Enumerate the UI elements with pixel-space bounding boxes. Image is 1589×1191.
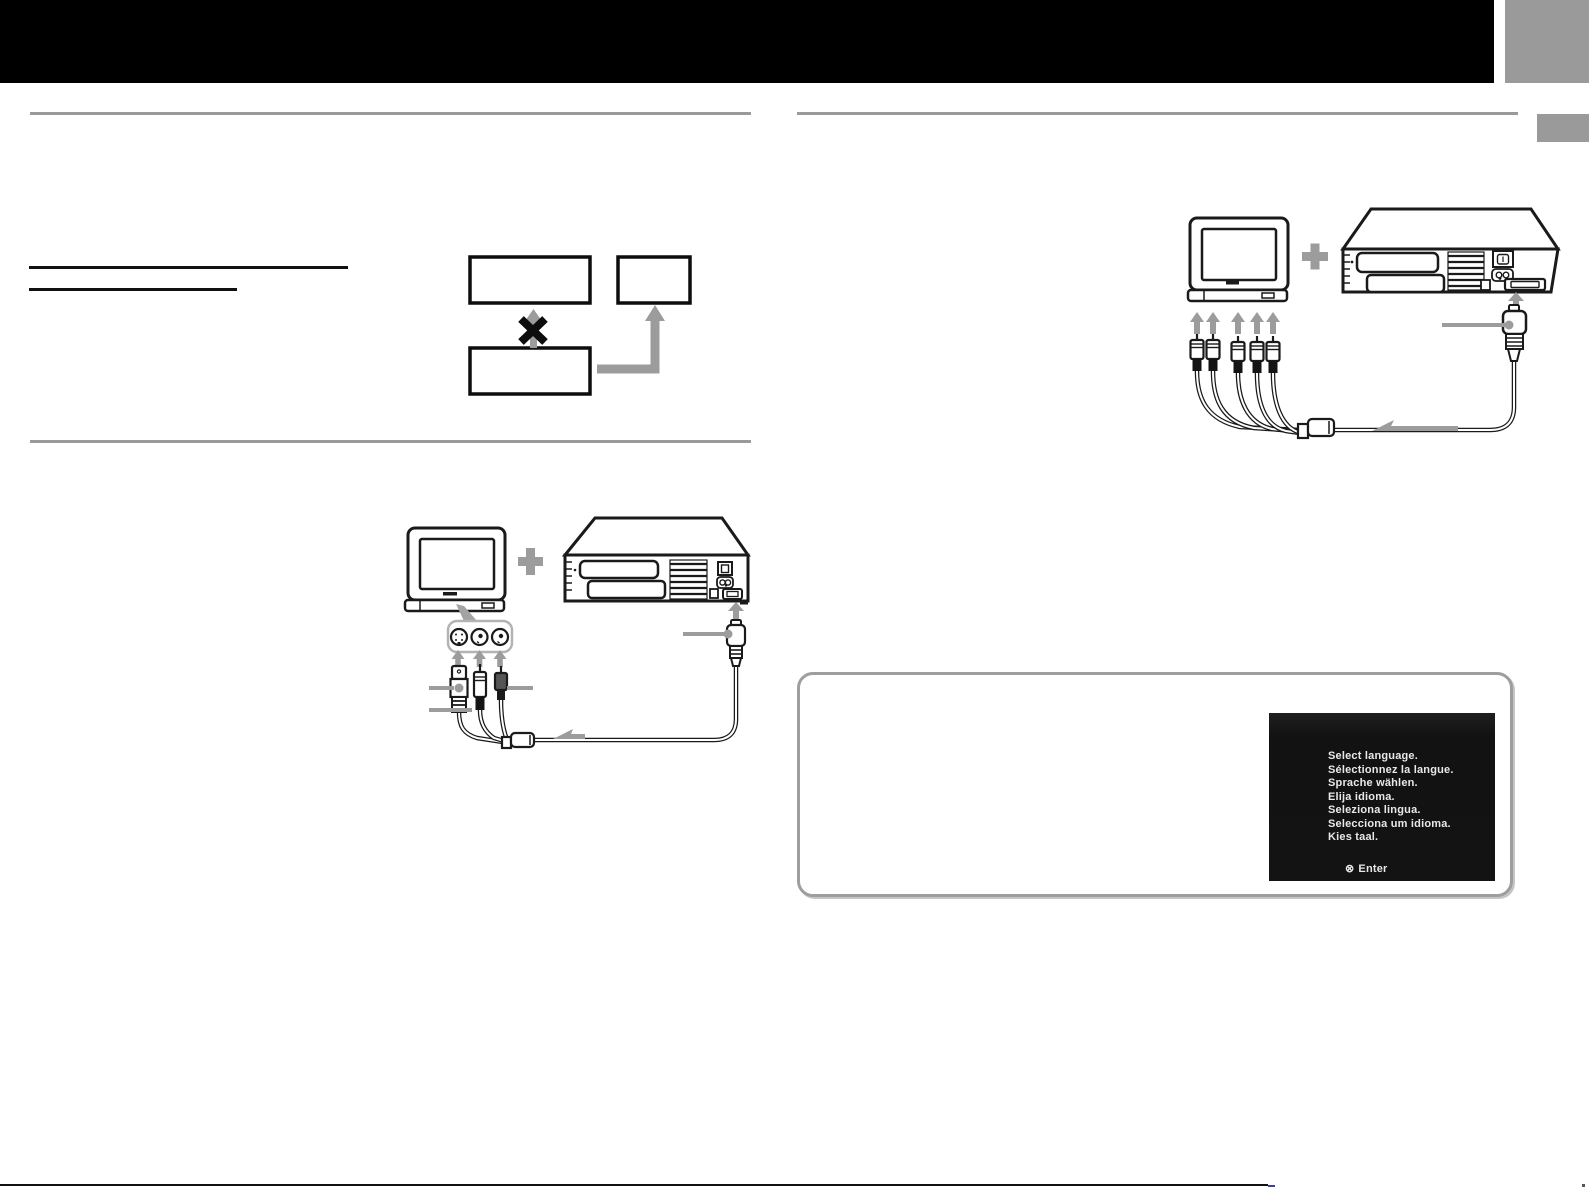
rca-plug: [1251, 336, 1264, 373]
language-line: Sélectionnez la langue.: [1328, 764, 1454, 778]
plus-icon: [518, 548, 543, 575]
language-line: Sprache wählen.: [1328, 777, 1454, 791]
diagram-connection-component: [1130, 190, 1570, 450]
box-top-right: [618, 257, 690, 303]
section-rule-left-second: [30, 440, 751, 443]
console-icon: [1343, 209, 1558, 292]
language-line: Select language.: [1328, 750, 1454, 764]
rca-plug: [1267, 336, 1280, 373]
enter-prompt: ⊗Enter: [1345, 862, 1388, 875]
cross-button-icon: ⊗: [1345, 863, 1354, 875]
rca-plug: [1191, 334, 1204, 371]
s-video-jack: [451, 629, 467, 645]
console-icon: [565, 518, 748, 605]
scan-speck: [1582, 1184, 1585, 1187]
vent-grille: [1448, 252, 1484, 290]
rca-plug-white: [474, 664, 486, 710]
rca-plug-red: [495, 666, 507, 700]
lower-tray: [588, 581, 665, 598]
header-bar: [0, 0, 1494, 83]
power-button-icon: [718, 562, 732, 575]
header-corner-square: [1505, 0, 1589, 83]
tv-icon: [1188, 218, 1288, 301]
ac-inlet-icon: [717, 577, 733, 588]
manual-page: Select language. Sélectionnez la langue.…: [0, 0, 1589, 1191]
rca-plug: [1207, 334, 1220, 371]
diagram-connection-svideo: [395, 500, 755, 760]
ilink-port-icon: [710, 589, 718, 598]
jack-arrows-up: [1190, 312, 1280, 334]
cable-junction: [1298, 419, 1334, 438]
callout-dot: [455, 684, 464, 693]
disc-tray: [1357, 253, 1438, 272]
vent-grille: [670, 560, 707, 599]
rca-plug: [1232, 336, 1245, 373]
language-select-screen: Select language. Sélectionnez la langue.…: [1269, 713, 1495, 881]
reference-underline-1: [29, 266, 348, 269]
ilink-port-icon: [1481, 280, 1490, 290]
callout-dot: [1505, 321, 1514, 330]
tv-icon: [405, 528, 505, 611]
plus-icon: [1302, 244, 1328, 270]
audio-jack-left: [472, 629, 488, 645]
diagram-blocked-connection: [440, 240, 720, 410]
scan-edge-line: [0, 1184, 1268, 1186]
power-button-icon: [1493, 251, 1513, 267]
language-line: Selecciona um idioma.: [1328, 818, 1454, 832]
hint-box: Select language. Sélectionnez la langue.…: [797, 672, 1513, 897]
page-edge-tab: [1537, 114, 1589, 142]
language-line: Kies taal.: [1328, 831, 1454, 845]
enter-label: Enter: [1358, 863, 1387, 875]
language-lines: Select language. Sélectionnez la langue.…: [1328, 750, 1454, 845]
section-rule-right-top: [797, 112, 1518, 115]
box-top-left: [470, 257, 590, 303]
reference-underline-2: [29, 288, 237, 291]
cable-direction-arrow-icon: [1372, 420, 1458, 431]
av-multi-out-port: [723, 589, 742, 599]
rca-plugs: [1191, 334, 1280, 373]
lower-tray: [1367, 275, 1444, 292]
scan-edge-dash: [1268, 1185, 1275, 1187]
elbow-arrow-icon: [597, 305, 665, 369]
language-line: Seleziona lingua.: [1328, 804, 1454, 818]
console-plug: [724, 602, 746, 666]
box-bottom: [470, 348, 590, 394]
cable-direction-arrow-icon: [553, 729, 585, 739]
av-multi-out-port: [1505, 279, 1545, 290]
cables: [1197, 362, 1514, 433]
section-rule-left-top: [30, 112, 751, 115]
audio-jack-right: [492, 629, 508, 645]
disc-tray: [580, 561, 658, 578]
language-line: Elija idioma.: [1328, 791, 1454, 805]
tv-jack-panel: [448, 621, 512, 652]
console-plug: [1503, 292, 1526, 361]
